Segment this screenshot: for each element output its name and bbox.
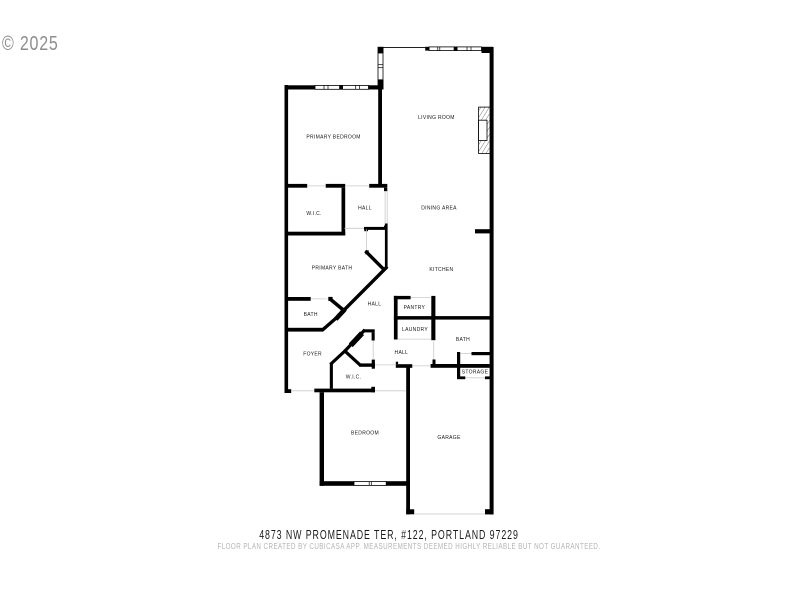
svg-text:LAUNDRY: LAUNDRY [402,327,428,333]
svg-text:STORAGE: STORAGE [462,370,489,376]
svg-text:HALL: HALL [368,302,382,308]
svg-text:PRIMARY BATH: PRIMARY BATH [312,266,353,272]
svg-text:KITCHEN: KITCHEN [429,267,453,273]
svg-text:PANTRY: PANTRY [404,305,426,311]
svg-text:GARAGE: GARAGE [437,435,461,441]
svg-text:DINING AREA: DINING AREA [421,205,457,211]
svg-text:BATH: BATH [456,337,470,343]
svg-text:W.I.C.: W.I.C. [346,375,361,381]
svg-text:LIVING ROOM: LIVING ROOM [418,115,455,121]
svg-text:BEDROOM: BEDROOM [351,431,379,437]
svg-text:FOYER: FOYER [303,352,322,358]
svg-text:W.I.C.: W.I.C. [306,211,321,217]
svg-text:HALL: HALL [395,350,409,356]
svg-text:HALL: HALL [358,205,372,211]
svg-text:PRIMARY BEDROOM: PRIMARY BEDROOM [306,134,360,140]
svg-text:BATH: BATH [304,312,318,318]
